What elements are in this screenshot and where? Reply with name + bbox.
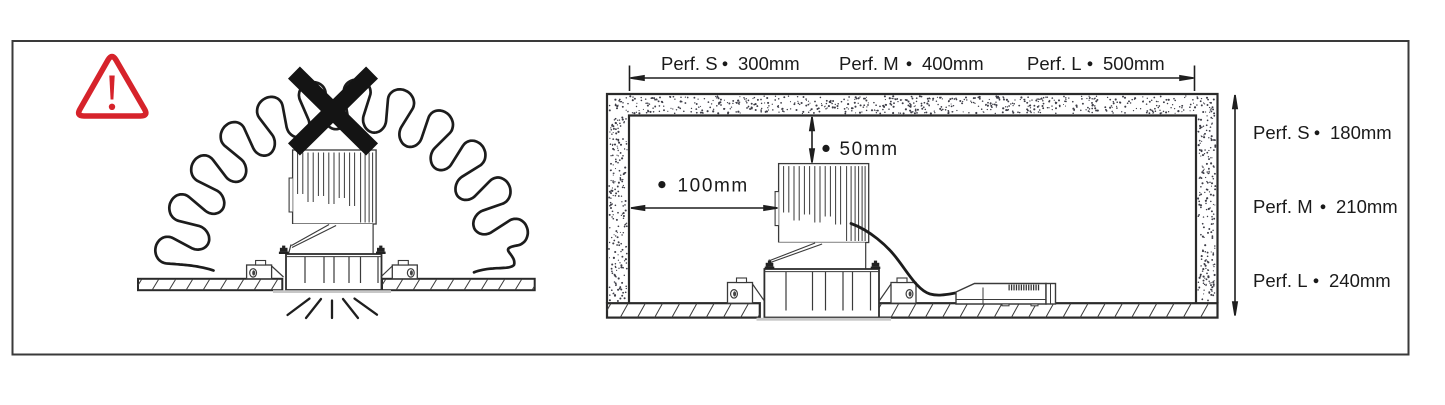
svg-text:180mm: 180mm	[1330, 122, 1392, 143]
svg-text:Perf. L: Perf. L	[1253, 270, 1308, 291]
svg-text:100mm: 100mm	[678, 176, 749, 197]
svg-text:210mm: 210mm	[1336, 196, 1398, 217]
svg-text:Perf. M: Perf. M	[1253, 196, 1313, 217]
svg-text:500mm: 500mm	[1103, 53, 1165, 74]
svg-text:300mm: 300mm	[738, 53, 800, 74]
svg-text:Perf. M: Perf. M	[839, 53, 899, 74]
svg-text:Perf. S: Perf. S	[1253, 122, 1310, 143]
svg-text:Perf. L: Perf. L	[1027, 53, 1082, 74]
svg-text:400mm: 400mm	[922, 53, 984, 74]
svg-text:Perf. S: Perf. S	[661, 53, 718, 74]
svg-text:50mm: 50mm	[840, 139, 899, 160]
svg-text:240mm: 240mm	[1329, 270, 1391, 291]
